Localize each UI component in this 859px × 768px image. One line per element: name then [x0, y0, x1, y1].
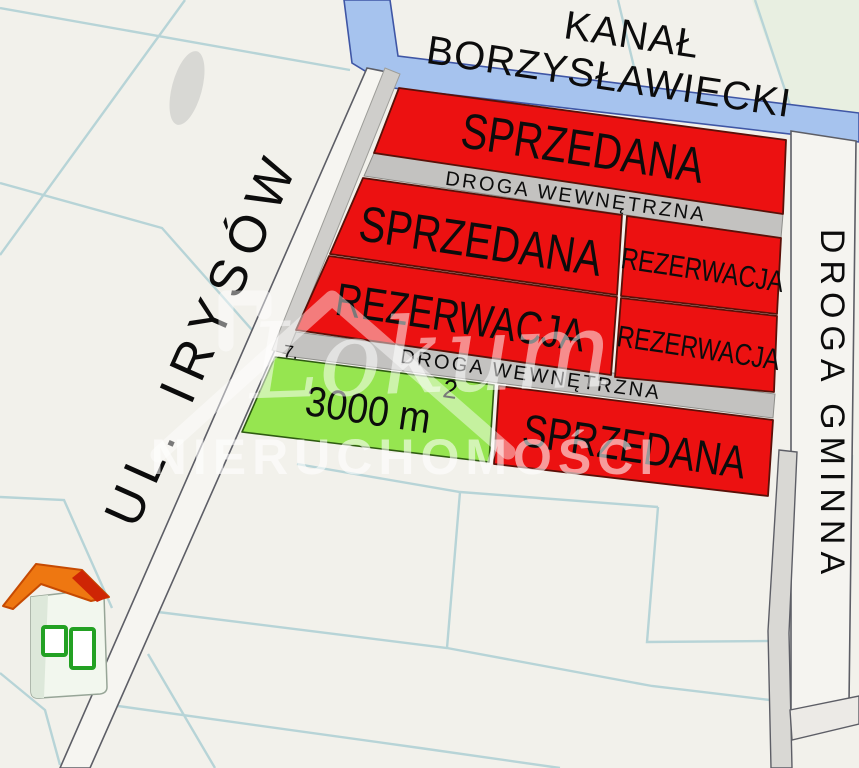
plot-map: SPRZEDANA SPRZEDANA REZERWACJA REZERWACJ…	[0, 0, 859, 768]
house-window-left	[43, 627, 66, 655]
watermark-script: Lokum	[245, 289, 615, 424]
watermark: Lokum NIERUCHOMOŚCI	[151, 289, 660, 485]
watermark-caps: NIERUCHOMOŚCI	[151, 429, 660, 485]
house-window-right	[71, 629, 94, 668]
road-label-droga-gminna: DROGA GMINNA	[813, 229, 851, 581]
